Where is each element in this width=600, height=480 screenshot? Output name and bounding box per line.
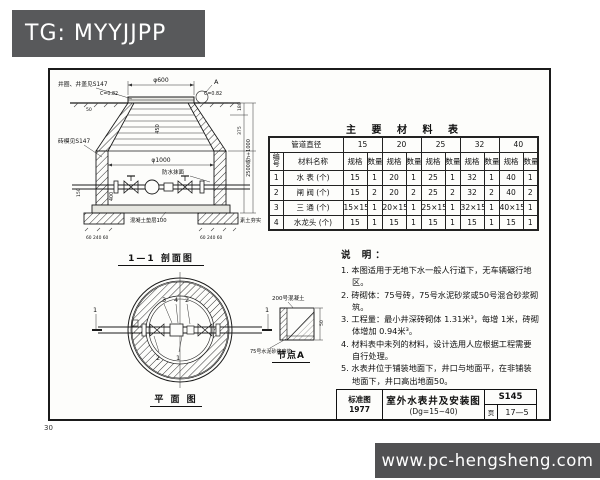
row4-no: 4 [269, 215, 283, 230]
cell: 32 [460, 170, 484, 185]
callout-2-top: 2 [185, 296, 189, 304]
cell: 1 [406, 215, 421, 230]
cell: 1 [445, 170, 460, 185]
plaster-label: 防水抹面 [162, 168, 185, 176]
dims-bottom-right: 60 240 60 [200, 235, 223, 241]
cell: 1 [484, 215, 499, 230]
row4-name: 水龙头 (个) [283, 215, 343, 230]
section-mark-left: 1 [93, 306, 97, 314]
section-view-caption: 1—1 剖面图 [118, 251, 204, 266]
slope-right-label: C=0.82 [204, 91, 222, 97]
cell: 32 [460, 185, 484, 200]
cell: 20 [382, 185, 406, 200]
note-item-4: 4. 材料表中未列的材料，设计选用人应根据工程需要自行处理。 [341, 338, 539, 363]
cell: 15 [499, 215, 523, 230]
dim-phi1000-label: φ1000 [151, 157, 170, 164]
note-item-2: 2. 砖砌体：75号砖，75号水泥砂浆或50号混合砂浆砌筑。 [341, 289, 539, 314]
header-spec-4: 规格 [460, 152, 484, 170]
cell: 2 [406, 185, 421, 200]
table-row: 1 水 表 (个) 15 1 20 1 25 1 32 1 40 1 [269, 170, 538, 185]
cell: 25 [421, 185, 445, 200]
table-row: 4 水龙头 (个) 15 1 15 1 15 1 15 1 15 1 [269, 215, 538, 230]
row3-no: 3 [269, 200, 283, 215]
cell: 32×15 [460, 200, 484, 215]
cell: 1 [445, 200, 460, 215]
notes-section: 说 明： 1. 本图适用于无地下水一般人行道下，无车辆碾行地区。 2. 砖砌体：… [341, 247, 539, 387]
screenshot-root: TG: MYYJJPP 30 φ600 [0, 0, 600, 480]
cell: 1 [484, 170, 499, 185]
cone-dim-label: 450 [155, 124, 161, 134]
drawing-subtitle: (Dg=15~40) [409, 407, 457, 416]
cell: 1 [367, 215, 382, 230]
cell: 1 [445, 215, 460, 230]
dim-50-label: 50 [86, 107, 92, 113]
dim-phi600: φ600 [128, 77, 194, 95]
section-view-drawing: φ600 A 井圈、井盖见S147 C=0.82 C=0.82 450 砖模见S… [56, 73, 268, 251]
header-qty-2: 数量 [406, 152, 421, 170]
cell: 15 [343, 185, 367, 200]
callout-1: 1 [176, 354, 180, 362]
table-row: 2 闸 阀 (个) 15 2 20 2 25 2 32 2 40 2 [269, 185, 538, 200]
header-spec-2: 规格 [382, 152, 406, 170]
title-block-code: S145 页 17—5 [484, 390, 536, 419]
header-spec-5: 规格 [499, 152, 523, 170]
notes-title: 说 明： [341, 247, 539, 261]
detail-a-caption: 节点A [272, 348, 310, 363]
dims-bottom-left: 60 240 60 [86, 235, 109, 241]
cover-label: 井圈、井盖见S147 [58, 80, 108, 88]
cell: 15 [460, 215, 484, 230]
header-spec-3: 规格 [421, 152, 445, 170]
cell: 40×15 [499, 200, 523, 215]
header-qty-4: 数量 [484, 152, 499, 170]
dim-150-label: 150 [76, 188, 82, 197]
well-cover [128, 97, 194, 103]
header-qty-1: 数量 [367, 152, 382, 170]
drawing-title: 室外水表井及安装图 [386, 393, 481, 407]
cell: 40 [499, 185, 523, 200]
cell: 1 [367, 200, 382, 215]
row1-no: 1 [269, 170, 283, 185]
row3-name: 三 通 (个) [283, 200, 343, 215]
cell: 1 [406, 170, 421, 185]
header-name: 材料名称 [283, 152, 343, 170]
plan-view-drawing: 3 4 2 2 1 1 1 [92, 268, 272, 392]
corner-tag-text: TG: MYYJJPP [25, 21, 166, 46]
watermark-bar: www.pc-hengsheng.com [375, 443, 600, 478]
watermark-url: www.pc-hengsheng.com [382, 451, 594, 470]
title-block-standard: 标准图 1977 [337, 390, 383, 419]
cell: 15 [343, 215, 367, 230]
cell: 15 [343, 170, 367, 185]
page-number: 30 [44, 424, 53, 432]
cell: 1 [523, 200, 538, 215]
cell: 1 [406, 200, 421, 215]
header-dn-15: 15 [343, 137, 382, 152]
detail-section-shape [270, 308, 314, 348]
header-dn-20: 20 [382, 137, 421, 152]
dim-375-label: 375 [237, 126, 243, 135]
table-header-columns: 编号 材料名称 规格 数量 规格 数量 规格 数量 规格 数量 规格 数量 [269, 152, 538, 170]
table-header-diameters: 管道直径 15 20 25 32 40 [269, 137, 538, 152]
cone-walls [96, 103, 226, 151]
detail-concrete-label: 200号混凝土 [272, 294, 305, 302]
cell: 20 [382, 170, 406, 185]
cell: 2 [445, 185, 460, 200]
cell: 1 [523, 170, 538, 185]
dim-total-label: 2500或h+1000 [245, 139, 252, 177]
note-item-5: 5. 水表井位于铺装地面下，井口与地面平，在非铺装地面下，井口高出地面50。 [341, 362, 539, 387]
corner-tag: TG: MYYJJPP [12, 10, 205, 57]
cell: 1 [367, 170, 382, 185]
ground-line [70, 103, 240, 107]
detail-dim-label: 50 [319, 320, 325, 326]
earth-label: 素土夯实 [240, 216, 261, 224]
mould-label: 砖模见S147 [58, 137, 90, 145]
cell: 15×15 [343, 200, 367, 215]
row2-name: 闸 阀 (个) [283, 185, 343, 200]
pipe-dim-label: 400 [109, 192, 115, 201]
header-qty-3: 数量 [445, 152, 460, 170]
header-no: 编号 [269, 152, 283, 170]
title-block-name: 室外水表井及安装图 (Dg=15~40) [383, 390, 484, 419]
right-dim-chain: 180 375 2500或h+1000 [228, 102, 256, 213]
cell: 20×15 [382, 200, 406, 215]
dim-180-label: 180 [237, 102, 243, 111]
slope-left-label: C=0.82 [100, 91, 118, 97]
cell: 15 [421, 215, 445, 230]
header-dn-40: 40 [499, 137, 538, 152]
header-spec-1: 规格 [343, 152, 367, 170]
detail-dim-right: 50 [315, 308, 325, 340]
materials-table-title: 主 要 材 料 表 [300, 121, 510, 136]
standard-label: 标准图 [348, 395, 371, 405]
detail-a-mark-label: A [214, 78, 219, 86]
note-item-3: 3. 工程量：最小井深砖砌体 1.31米³，每增 1米，砖砌体增加 0.94米³… [341, 313, 539, 338]
cell: 1 [484, 200, 499, 215]
dim-phi600-label: φ600 [153, 77, 169, 84]
cell: 15 [382, 215, 406, 230]
cell: 40 [499, 170, 523, 185]
row1-name: 水 表 (个) [283, 170, 343, 185]
page-label: 页 [485, 405, 498, 419]
title-block: 标准图 1977 室外水表井及安装图 (Dg=15~40) S145 页 17—… [336, 389, 537, 420]
row2-no: 2 [269, 185, 283, 200]
header-qty-5: 数量 [523, 152, 538, 170]
detail-a-marker: A [196, 78, 219, 103]
cell: 25×15 [421, 200, 445, 215]
header-dn-25: 25 [421, 137, 460, 152]
note-item-1: 1. 本图适用于无地下水一般人行道下，无车辆碾行地区。 [341, 264, 539, 289]
cell: 2 [484, 185, 499, 200]
materials-table: 管道直径 15 20 25 32 40 编号 材料名称 规格 数量 规格 数量 … [268, 136, 539, 231]
cell: 2 [523, 185, 538, 200]
table-row: 3 三 通 (个) 15×15 1 20×15 1 25×15 1 32×15 … [269, 200, 538, 215]
header-diameter: 管道直径 [269, 137, 343, 152]
callout-2-bottom: 2 [156, 354, 160, 362]
plan-view-caption: 平 面 图 [150, 392, 202, 407]
header-dn-32: 32 [460, 137, 499, 152]
cell: 1 [523, 215, 538, 230]
callout-3: 3 [162, 296, 166, 304]
sheet-number: 17—5 [498, 405, 536, 419]
cell: 2 [367, 185, 382, 200]
cell: 25 [421, 170, 445, 185]
dim-phi1000: φ1000 [108, 157, 214, 167]
drawing-code: S145 [485, 390, 536, 405]
callout-4: 4 [174, 296, 178, 304]
standard-year: 1977 [349, 405, 370, 415]
